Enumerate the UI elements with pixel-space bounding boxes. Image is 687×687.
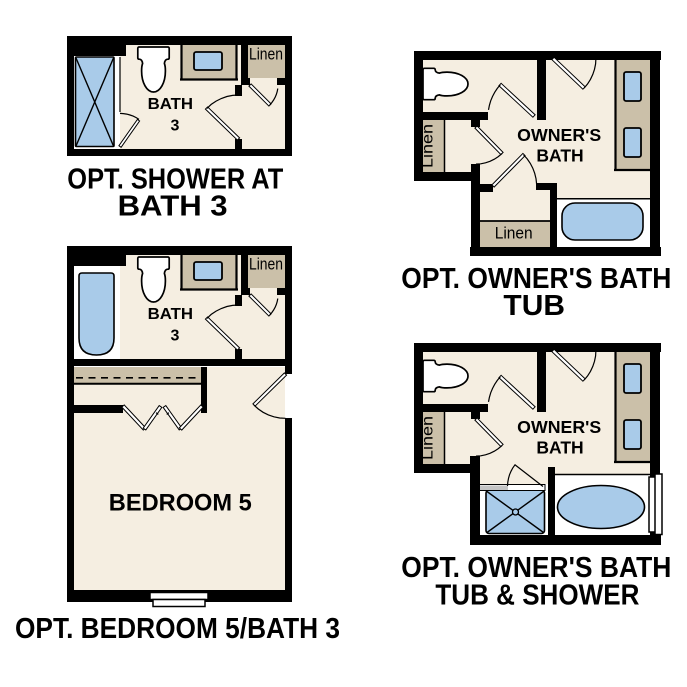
- svg-text:OWNER'S: OWNER'S: [517, 417, 601, 437]
- svg-text:BATH 3: BATH 3: [118, 191, 228, 223]
- svg-text:TUB & SHOWER: TUB & SHOWER: [435, 580, 639, 612]
- svg-text:BATH: BATH: [536, 146, 583, 166]
- svg-text:BATH: BATH: [148, 96, 193, 113]
- svg-text:BATH: BATH: [148, 306, 193, 323]
- svg-text:3: 3: [171, 118, 180, 135]
- svg-text:BATH: BATH: [536, 438, 583, 458]
- svg-text:OPT. BEDROOM 5/BATH 3: OPT. BEDROOM 5/BATH 3: [15, 613, 340, 645]
- svg-text:3: 3: [171, 328, 180, 345]
- svg-text:Linen: Linen: [249, 45, 283, 64]
- svg-text:Linen: Linen: [249, 255, 283, 274]
- svg-text:BEDROOM 5: BEDROOM 5: [109, 490, 252, 517]
- svg-text:OWNER'S: OWNER'S: [517, 125, 601, 145]
- svg-text:TUB: TUB: [503, 290, 565, 322]
- svg-text:Linen: Linen: [495, 224, 533, 243]
